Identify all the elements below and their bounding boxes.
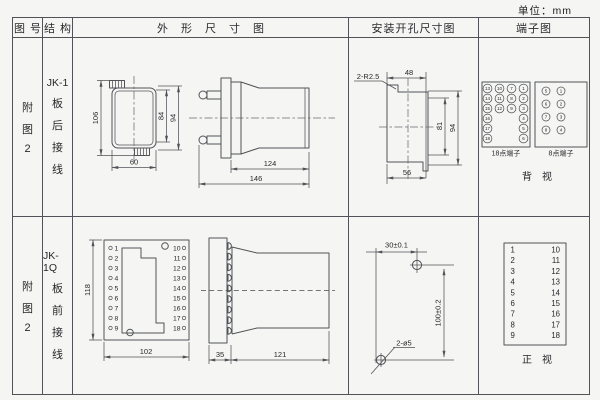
header-terminal-diagram: 端子图 [479, 18, 589, 38]
jk1q-terminal-diagram: 1 2 3 4 5 6 7 8 9 10 11 12 13 14 15 16 1… [479, 217, 589, 394]
bottom-connector-tab [135, 148, 150, 156]
radius-label: 2-R2.5 [357, 72, 380, 81]
dim-56: 56 [403, 168, 411, 177]
terminal-11: 11 [497, 96, 502, 101]
terminal-4: 4 [522, 116, 525, 121]
jk1q-outline-drawing: 1 2 3 4 5 6 7 8 9 10 11 12 13 14 15 [73, 217, 349, 394]
structure-char: 前 [52, 302, 63, 318]
terminal-12: 12 [551, 267, 560, 276]
row1-structure: JK-1 板 后 接 线 [43, 38, 73, 217]
unit-label: 单位：mm [518, 3, 572, 18]
header-outline-dims-label: 外形尺寸图 [157, 20, 277, 36]
top-connector-tab [110, 81, 125, 89]
terminal-4: 4 [560, 128, 563, 133]
terminal-14: 14 [173, 285, 181, 292]
terminal-7: 7 [545, 115, 548, 120]
figure-char: 附 [22, 278, 33, 294]
terminal-12: 12 [497, 106, 503, 111]
terminal-3: 3 [522, 106, 525, 111]
jk1q-front-view: 1 2 3 4 5 6 7 8 9 10 11 12 13 14 15 [83, 240, 189, 361]
structure-char: 线 [52, 346, 63, 362]
terminal-stud [199, 91, 207, 99]
terminal-2: 2 [560, 102, 563, 107]
header-mounting-dims: 安装开孔尺寸图 [349, 18, 479, 38]
terminal-6: 6 [115, 295, 119, 302]
dim-30: 30±0.1 [385, 241, 408, 250]
row1-figure-no: 附 图 2 [13, 38, 43, 217]
terminal-4: 4 [115, 275, 119, 282]
terminal-9: 9 [115, 325, 119, 332]
terminal-3: 3 [511, 267, 515, 276]
dim-94: 94 [169, 114, 178, 122]
figure-char: 2 [24, 322, 30, 334]
header-terminal-diagram-label: 端子图 [516, 20, 552, 36]
terminal-block-8pt: 5 1 6 2 7 3 8 4 8点端子 [535, 82, 587, 158]
front-terminals-right: 10 11 12 13 14 15 16 17 18 [173, 245, 186, 332]
terminal-13: 13 [485, 86, 491, 91]
terminal-block-8pt-label: 8点端子 [549, 149, 574, 158]
terminal-8: 8 [545, 128, 548, 133]
terminal-14: 14 [551, 288, 560, 297]
terminal-7: 7 [115, 305, 119, 312]
dim-102: 102 [140, 347, 153, 356]
row1-terminal-cell: 13 10 7 1 14 11 8 2 15 12 9 3 16 4 17 5 … [479, 38, 589, 217]
header-structure: 结构 [43, 18, 73, 38]
figure-char: 2 [24, 143, 30, 155]
terminal-11: 11 [173, 255, 180, 262]
terminal-10: 10 [173, 245, 181, 252]
structure-char: 线 [52, 161, 63, 177]
terminal-16: 16 [485, 116, 491, 121]
terminal-10: 10 [497, 86, 503, 91]
terminal-8: 8 [115, 315, 119, 322]
terminal-1: 1 [522, 86, 525, 91]
terminal-block-18pt: 13 10 7 1 14 11 8 2 15 12 9 3 16 4 17 5 … [482, 82, 530, 158]
dim-146: 146 [250, 174, 263, 183]
terminal-8: 8 [511, 320, 515, 329]
terminal-3: 3 [560, 115, 563, 120]
terminal-9: 9 [511, 331, 515, 340]
header-mounting-dims-label: 安装开孔尺寸图 [372, 20, 456, 36]
terminal-4: 4 [511, 278, 516, 287]
terminal-17: 17 [173, 315, 181, 322]
terminal-2: 2 [115, 255, 119, 262]
terminal-8: 8 [510, 96, 513, 101]
row2-outline-cell: 1 2 3 4 5 6 7 8 9 10 11 12 13 14 15 [73, 217, 349, 394]
dim-81: 81 [435, 122, 444, 130]
figure-char: 附 [22, 99, 33, 115]
terminal-18: 18 [485, 136, 491, 141]
terminal-16: 16 [551, 310, 560, 319]
dim-60: 60 [130, 158, 138, 167]
terminal-7: 7 [510, 86, 513, 91]
terminal-1: 1 [511, 246, 515, 255]
row2-terminal-cell: 1 2 3 4 5 6 7 8 9 10 11 12 13 14 15 16 1… [479, 217, 589, 394]
terminal-12: 12 [173, 265, 181, 272]
rear-view-label: 背 视 [522, 170, 552, 183]
terminal-3: 3 [115, 265, 119, 272]
dim-100: 100±0.2 [434, 299, 443, 326]
terminal-5: 5 [115, 285, 119, 292]
terminal-17: 17 [485, 126, 491, 131]
terminal-6: 6 [511, 299, 515, 308]
jk1-outline-drawing: 106 84 94 60 [73, 38, 349, 216]
terminal-18: 18 [551, 331, 560, 340]
terminal-15: 15 [173, 295, 181, 302]
structure-char: 接 [52, 324, 63, 340]
dim-118: 118 [83, 284, 92, 296]
dim-121: 121 [274, 350, 287, 359]
jk1-terminal-diagram: 13 10 7 1 14 11 8 2 15 12 9 3 16 4 17 5 … [479, 38, 589, 216]
jk1-side-view: 124 146 [189, 78, 335, 188]
jk1-cutout-drawing: 48 2-R2.5 81 94 56 [349, 38, 479, 216]
terminal-17: 17 [551, 320, 560, 329]
mounting-holes: 30±0.1 100±0.2 2-ø5 [366, 241, 454, 375]
structure-char: 板 [52, 280, 63, 296]
terminal-9: 9 [510, 106, 513, 111]
jk1-front-view: 106 84 94 60 [91, 76, 182, 171]
terminal-5: 5 [522, 126, 525, 131]
figure-char: 图 [22, 121, 33, 137]
row1-outline-cell: 106 84 94 60 [73, 38, 349, 217]
dim-94: 94 [448, 124, 457, 132]
dim-84: 84 [157, 112, 166, 120]
terminal-11: 11 [552, 256, 560, 265]
structure-char: 板 [52, 95, 63, 111]
terminal-14: 14 [485, 96, 491, 101]
jk1q-holes-drawing: 30±0.1 100±0.2 2-ø5 [349, 217, 479, 394]
structure-char: 接 [52, 139, 63, 155]
terminal-1: 1 [560, 89, 563, 94]
terminal-2: 2 [522, 96, 525, 101]
front-view-label: 正 视 [522, 353, 552, 366]
terminal-5: 5 [545, 89, 548, 94]
terminal-5: 5 [511, 288, 516, 297]
row2-figure-no: 附 图 2 [13, 217, 43, 394]
header-figure-no-label: 图号 [14, 20, 43, 36]
dim-35: 35 [216, 350, 224, 359]
header-outline-dims: 外形尺寸图 [73, 18, 349, 38]
inner-module-outline [122, 248, 164, 333]
dim-48: 48 [405, 68, 413, 77]
model-name: JK-1 [47, 77, 69, 89]
terminal-stud [199, 136, 207, 144]
terminal-13: 13 [173, 275, 181, 282]
terminal-6: 6 [545, 102, 548, 107]
terminal-block-18pt-label: 18点端子 [492, 149, 521, 158]
row2-mounting-cell: 30±0.1 100±0.2 2-ø5 [349, 217, 479, 394]
terminal-15: 15 [551, 299, 560, 308]
jk1q-side-view: 35 121 [201, 238, 335, 364]
figure-char: 图 [22, 300, 33, 316]
terminal-10: 10 [551, 246, 560, 255]
structure-char: 后 [52, 117, 63, 133]
hole-diameter-label: 2-ø5 [396, 339, 411, 348]
panel-cutout: 48 2-R2.5 81 94 56 [354, 68, 462, 184]
terminal-18: 18 [173, 325, 181, 332]
row1-mounting-cell: 48 2-R2.5 81 94 56 [349, 38, 479, 217]
terminal-list-box: 1 2 3 4 5 6 7 8 9 10 11 12 13 14 15 16 1… [504, 243, 566, 345]
terminal-6: 6 [522, 136, 525, 141]
terminal-2: 2 [511, 256, 515, 265]
terminal-16: 16 [173, 305, 181, 312]
model-name: JK-1Q [43, 250, 72, 274]
front-terminals-left: 1 2 3 4 5 6 7 8 9 [109, 245, 119, 332]
dim-106: 106 [91, 112, 100, 125]
header-figure-no: 图号 [13, 18, 43, 38]
spec-table: 图号 结构 外形尺寸图 安装开孔尺寸图 端子图 附 图 2 JK-1 板 后 接… [12, 17, 590, 395]
mounting-hole [162, 243, 169, 250]
dim-124: 124 [264, 159, 277, 168]
terminal-7: 7 [511, 310, 515, 319]
terminal-15: 15 [485, 106, 491, 111]
terminal-13: 13 [551, 278, 560, 287]
row2-structure: JK-1Q 板 前 接 线 [43, 217, 73, 394]
terminal-1: 1 [115, 245, 119, 252]
terminal-bumps [228, 243, 231, 335]
header-structure-label: 结构 [44, 20, 73, 36]
